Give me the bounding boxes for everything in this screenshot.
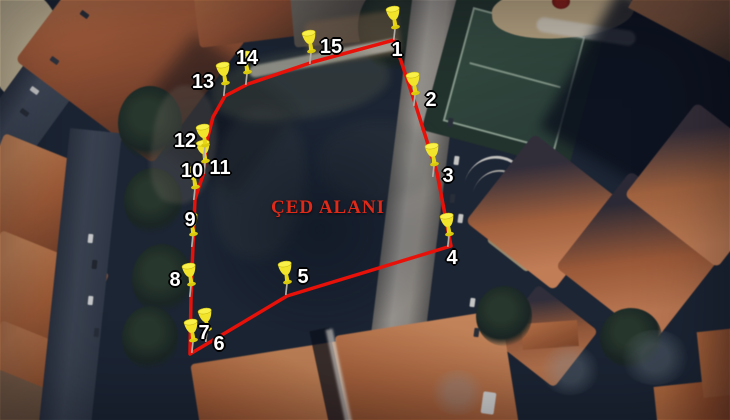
pin-label-10: 10 bbox=[181, 161, 203, 181]
pin-label-9: 9 bbox=[184, 210, 195, 230]
pin-label-6: 6 bbox=[213, 334, 224, 354]
pin-label-3: 3 bbox=[442, 166, 453, 186]
pin-label-8: 8 bbox=[169, 270, 180, 290]
pin-label-7: 7 bbox=[198, 323, 209, 343]
pin-label-1: 1 bbox=[391, 40, 402, 60]
pin-label-5: 5 bbox=[297, 267, 308, 287]
pin-label-15: 15 bbox=[320, 37, 342, 57]
pin-label-13: 13 bbox=[192, 72, 214, 92]
pin-label-14: 14 bbox=[236, 48, 258, 68]
satellite-map: 123456789101112131415 ÇED ALANI bbox=[0, 0, 730, 420]
pin-label-4: 4 bbox=[446, 248, 457, 268]
area-label: ÇED ALANI bbox=[271, 197, 385, 219]
pin-label-12: 12 bbox=[174, 131, 196, 151]
pin-label-11: 11 bbox=[209, 158, 230, 178]
pin-label-2: 2 bbox=[425, 90, 436, 110]
